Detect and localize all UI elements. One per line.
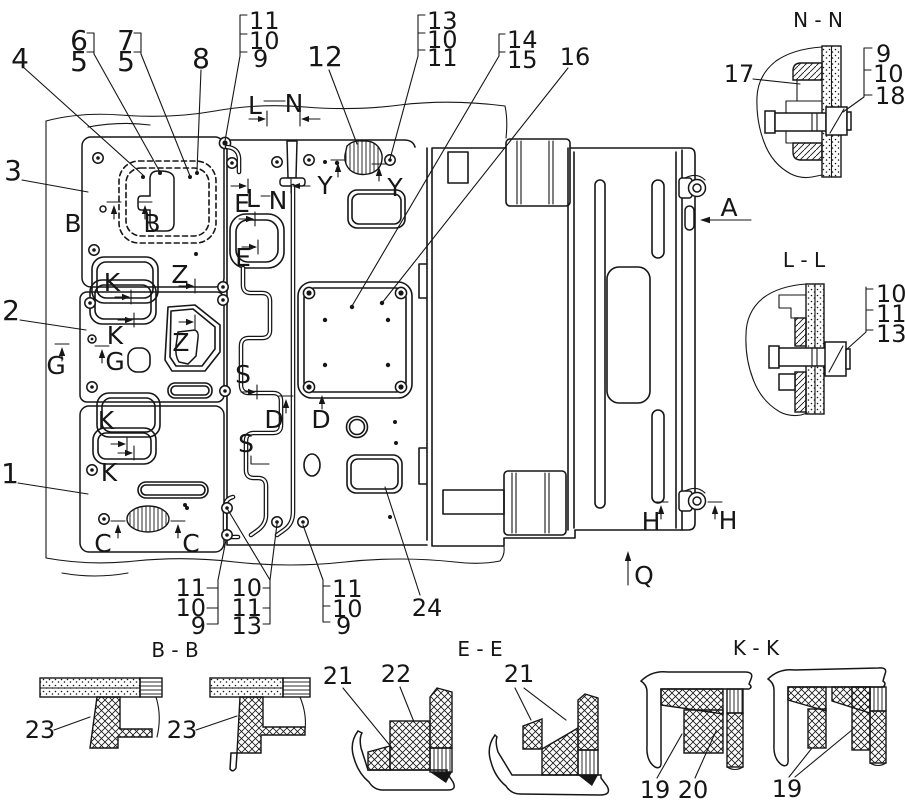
marker-d-1: D [264, 405, 283, 434]
callout-12: 12 [307, 40, 343, 73]
callout-24: 24 [412, 594, 443, 622]
seal-section [523, 719, 542, 749]
callout-9-c: 9 [336, 612, 351, 640]
callout-13-c: 13 [876, 320, 905, 348]
callout-21-b: 21 [504, 660, 535, 688]
clip [679, 175, 706, 198]
section-view-kk: K - K 19 20 19 [640, 636, 886, 804]
slot [595, 180, 605, 508]
callout-22: 22 [381, 660, 412, 688]
callout-21-a: 21 [323, 662, 354, 690]
square-cover-plate [298, 282, 412, 398]
marker-c-2: C [182, 529, 199, 558]
marker-k-1: K [104, 268, 121, 297]
marker-z-1: Z [171, 260, 188, 289]
section-view-bb: B - B 23 23 [25, 638, 310, 771]
seal-section [430, 688, 452, 748]
bolt [775, 113, 826, 131]
marker-h-2: H [719, 506, 738, 535]
marker-y-2: Y [386, 173, 403, 202]
marker-h-1: H [642, 507, 661, 536]
bolt-hole [93, 153, 103, 163]
callout-9-a: 9 [253, 45, 268, 73]
marker-q: Q [634, 561, 654, 590]
callout-4: 4 [11, 42, 29, 75]
section-title-nn: N - N [793, 8, 843, 32]
flange-section-hatch [795, 372, 806, 412]
mount-block [504, 471, 566, 535]
callout-15: 15 [507, 46, 538, 74]
marker-b-1: B [64, 209, 81, 238]
slot [652, 410, 664, 503]
opening [607, 267, 650, 403]
flange-section-hatch [795, 318, 806, 346]
seal-section [237, 697, 305, 753]
seal-section [90, 697, 152, 748]
callout-13-b: 13 [231, 612, 262, 640]
seal-section [578, 694, 598, 750]
section-title-ee: E - E [457, 637, 502, 661]
hatched-plug [127, 506, 169, 532]
callout-11-b: 11 [427, 44, 458, 72]
marker-c-1: C [94, 529, 111, 558]
opening [347, 455, 402, 493]
section-title-bb: B - B [151, 638, 198, 662]
flange-section-hatch [793, 63, 822, 80]
callout-17: 17 [724, 60, 755, 88]
technical-parts-drawing: B B C C G G K K K K Z Z Y Y S S D D E E … [0, 0, 905, 809]
callout-1: 1 [1, 457, 19, 490]
callout-19-a: 19 [640, 776, 671, 804]
section-view-nn: N - N 17 9 10 18 [724, 8, 905, 178]
section-view-ee: E - E 21 22 21 [323, 637, 609, 795]
marker-l-1: L [248, 91, 262, 120]
mount-block [506, 139, 570, 206]
seal-section [542, 728, 578, 775]
marker-s-2: S [238, 429, 254, 458]
slot [652, 180, 664, 258]
callout-2: 2 [2, 294, 20, 327]
callout-8: 8 [192, 42, 210, 75]
seal-section [368, 746, 390, 770]
marker-k-2: K [107, 321, 124, 350]
callout-16: 16 [560, 43, 591, 71]
section-title-kk: K - K [733, 636, 780, 660]
seal-section [684, 710, 723, 753]
callout-23-b: 23 [167, 716, 198, 744]
section-title-ll: L - L [783, 248, 826, 272]
hatched-plug [345, 141, 382, 175]
callout-5-b: 5 [117, 45, 135, 78]
clip [679, 488, 706, 511]
callout-3: 3 [4, 154, 22, 187]
marker-g-2: G [105, 347, 124, 376]
marker-k-4: K [101, 458, 118, 487]
marker-n-2: N [269, 186, 288, 215]
section-view-ll: L - L 10 11 13 [746, 248, 905, 416]
marker-y-1: Y [316, 171, 333, 200]
marker-k-3: K [98, 406, 115, 435]
callout-5-a: 5 [70, 45, 88, 78]
flange-section-hatch [793, 143, 822, 160]
parts-diagram-page: B B C C G G K K K K Z Z Y Y S S D D E E … [0, 0, 905, 809]
pin [287, 141, 297, 178]
marker-s-1: S [235, 360, 251, 389]
callout-23-a: 23 [25, 716, 56, 744]
bolt [779, 348, 826, 366]
seal-section [390, 721, 430, 770]
seal-section [788, 687, 826, 711]
housing-body [432, 139, 706, 546]
callout-20: 20 [678, 776, 709, 804]
bolt-hole [89, 245, 99, 255]
marker-z-2: Z [172, 328, 189, 357]
callout-9-b: 9 [191, 612, 206, 640]
marker-d-2: D [311, 405, 330, 434]
marker-a: A [720, 193, 737, 222]
callout-19-b: 19 [772, 775, 803, 803]
callout-18: 18 [875, 82, 905, 110]
